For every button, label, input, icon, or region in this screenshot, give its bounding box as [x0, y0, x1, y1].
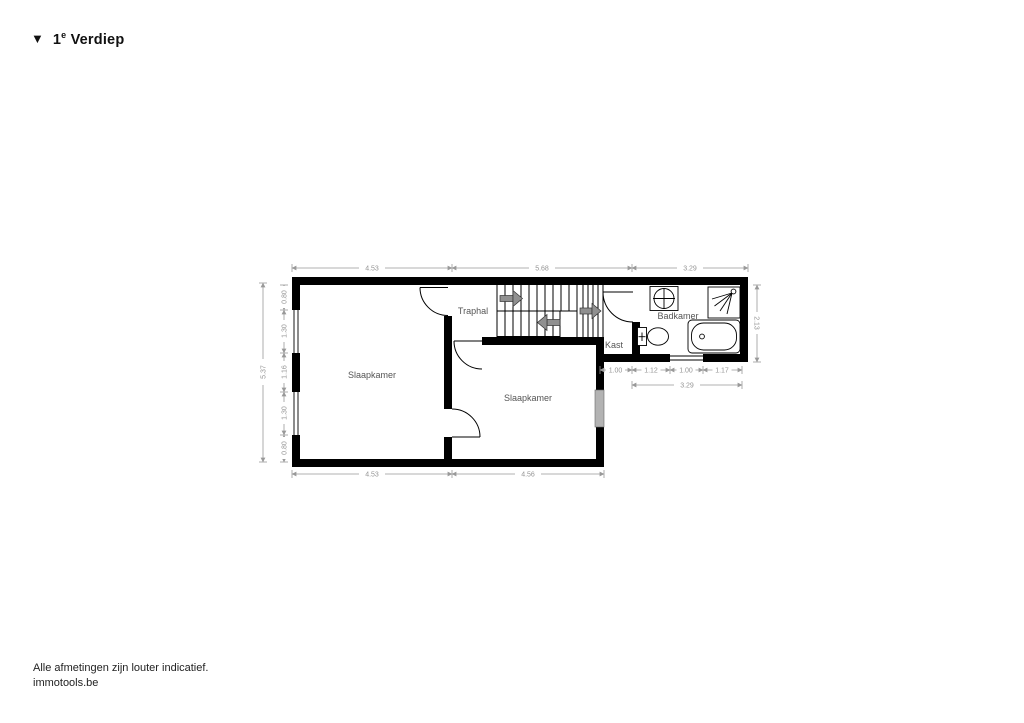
sink-icon: [650, 287, 678, 311]
window-left-lower: [292, 392, 300, 435]
dim-left-seg-2: 1.30: [282, 324, 289, 338]
disclaimer: Alle afmetingen zijn louter indicatief. …: [33, 661, 208, 692]
room-label-closet: Kast: [605, 340, 624, 350]
dim-left-seg-1: 0.80: [282, 290, 289, 304]
dim-left-seg-4: 1.30: [282, 406, 289, 420]
dim-bath-seg-4: 1.17: [715, 368, 729, 375]
room-label-bedroom-mid: Slaapkamer: [504, 393, 552, 403]
dim-bottom-2: 4.56: [521, 472, 535, 479]
toilet-icon: [638, 328, 669, 346]
window-bathroom-bottom: [670, 354, 703, 362]
dim-top-3: 3.29: [683, 266, 697, 273]
dim-bath-seg-1: 1.00: [609, 368, 623, 375]
dim-right: 2.13: [753, 316, 760, 330]
dim-left-seg-3: 1.16: [282, 365, 289, 379]
dim-left-total: 5.37: [261, 365, 268, 379]
window-bedroom2-right: [595, 390, 604, 427]
room-label-bathroom: Badkamer: [657, 311, 698, 321]
room-label-bedroom-left: Slaapkamer: [348, 370, 396, 380]
disclaimer-line2: immotools.be: [33, 676, 208, 691]
dim-bottom-1: 4.53: [365, 472, 379, 479]
dim-bath-total: 3.29: [680, 383, 694, 390]
window-left-upper: [292, 310, 300, 353]
stair-arrow-right-icon: [500, 291, 523, 307]
page-title: ▼ 1e Verdiep: [31, 30, 124, 48]
dim-top-1: 4.53: [365, 266, 379, 273]
door-bedroom-mid-top: [454, 341, 482, 369]
floorplan-drawing: Slaapkamer Slaapkamer Traphal Kast Badka…: [0, 0, 1024, 723]
stair-arrow-left-icon: [538, 315, 561, 331]
door-bedroom-mid-bottom: [452, 409, 480, 437]
room-label-stair-hall: Traphal: [458, 306, 488, 316]
floor-title-text: 1e Verdiep: [53, 30, 125, 48]
floorplan-page: ▼ 1e Verdiep: [0, 0, 1024, 723]
door-bathroom: [603, 292, 633, 322]
dim-bath-seg-3: 1.00: [679, 368, 693, 375]
door-bedroom-left: [420, 288, 448, 316]
dim-bath-seg-2: 1.12: [644, 368, 658, 375]
floor-marker-icon: ▼: [31, 32, 44, 45]
disclaimer-line1: Alle afmetingen zijn louter indicatief.: [33, 661, 208, 676]
bathtub-icon: [688, 320, 740, 353]
dim-left-seg-5: 0.80: [282, 441, 289, 455]
shower-icon: [708, 287, 740, 318]
dim-top-2: 5.68: [535, 266, 549, 273]
